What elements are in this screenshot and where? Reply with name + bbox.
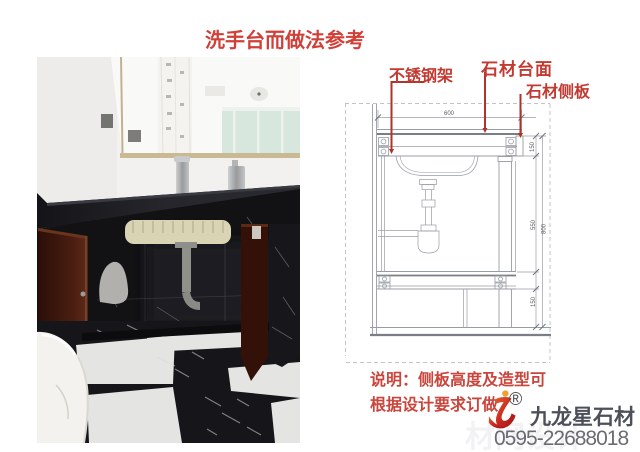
svg-text:600: 600 bbox=[444, 111, 455, 117]
svg-text:150: 150 bbox=[531, 296, 537, 307]
svg-text:550: 550 bbox=[531, 219, 537, 230]
svg-text:150: 150 bbox=[530, 141, 536, 152]
svg-text:800: 800 bbox=[542, 223, 548, 234]
